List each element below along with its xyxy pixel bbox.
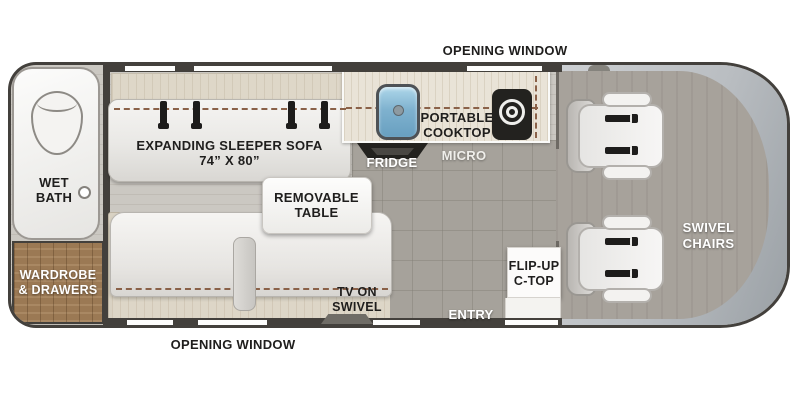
- opening-window-label-bottom: OPENING WINDOW: [168, 338, 298, 353]
- seat-belt-icon: [605, 270, 634, 277]
- window: [125, 66, 175, 71]
- wardrobe-label: WARDROBE & DRAWERS: [14, 268, 102, 298]
- sofa-fold-line: [114, 108, 346, 110]
- seat-belt-icon: [288, 101, 295, 129]
- tv-label: TV ON SWIVEL: [311, 285, 403, 314]
- chair-armrest: [602, 92, 652, 107]
- chair-armrest: [602, 165, 652, 180]
- top-wall: [104, 64, 562, 72]
- entry-label: ENTRY: [439, 308, 503, 323]
- b-pillar-top: [556, 69, 559, 149]
- seat-belt-icon: [160, 101, 167, 129]
- window: [194, 66, 332, 71]
- bench-center-armrest: [233, 237, 256, 311]
- seat-belt-icon: [321, 101, 328, 129]
- counter-edge-line: [535, 76, 537, 138]
- opening-window-label-top: OPENING WINDOW: [440, 44, 570, 59]
- chair-armrest: [602, 215, 652, 230]
- passenger-swivel-chair: [566, 95, 665, 177]
- flip-up-countertop: FLIP-UP C-TOP: [507, 247, 561, 298]
- faucet-icon: [393, 105, 404, 116]
- toilet-icon: [31, 91, 83, 155]
- seat-belt-icon: [193, 101, 200, 129]
- window: [127, 320, 173, 325]
- window: [373, 320, 420, 325]
- driver-swivel-chair: [566, 218, 665, 300]
- swivel-chairs-label: SWIVEL CHAIRS: [661, 220, 756, 251]
- micro-label: MICRO: [431, 149, 497, 164]
- wardrobe-cabinet: WARDROBE & DRAWERS: [12, 241, 104, 324]
- chair-seat: [578, 104, 664, 168]
- van-body: SWIVEL CHAIRS WET BATH WARDROBE & DRAWER…: [8, 62, 790, 328]
- fridge-label: FRIDGE: [356, 156, 428, 171]
- seat-belt-icon: [605, 147, 634, 154]
- removable-table: REMOVABLE TABLE: [262, 177, 372, 234]
- floor-plan: OPENING WINDOW OPENING WINDOW: [0, 0, 800, 400]
- seat-belt-icon: [605, 238, 634, 245]
- chair-seat: [578, 227, 664, 291]
- toilet-lid: [37, 94, 77, 112]
- window: [467, 66, 542, 71]
- removable-table-label: REMOVABLE TABLE: [263, 191, 370, 220]
- entry-door-opening: [505, 320, 558, 325]
- chair-armrest: [602, 288, 652, 303]
- portable-cooktop-label: PORTABLE COOKTOP: [405, 111, 509, 140]
- flip-up-label: FLIP-UP C-TOP: [508, 259, 560, 288]
- cab-area: SWIVEL CHAIRS: [556, 65, 787, 325]
- wet-bath: WET BATH: [12, 67, 100, 240]
- seat-belt-icon: [605, 115, 634, 122]
- wet-bath-label: WET BATH: [14, 175, 94, 205]
- window: [198, 320, 267, 325]
- tv-icon: [321, 314, 373, 324]
- sleeper-sofa-label: EXPANDING SLEEPER SOFA 74” X 80”: [108, 139, 351, 168]
